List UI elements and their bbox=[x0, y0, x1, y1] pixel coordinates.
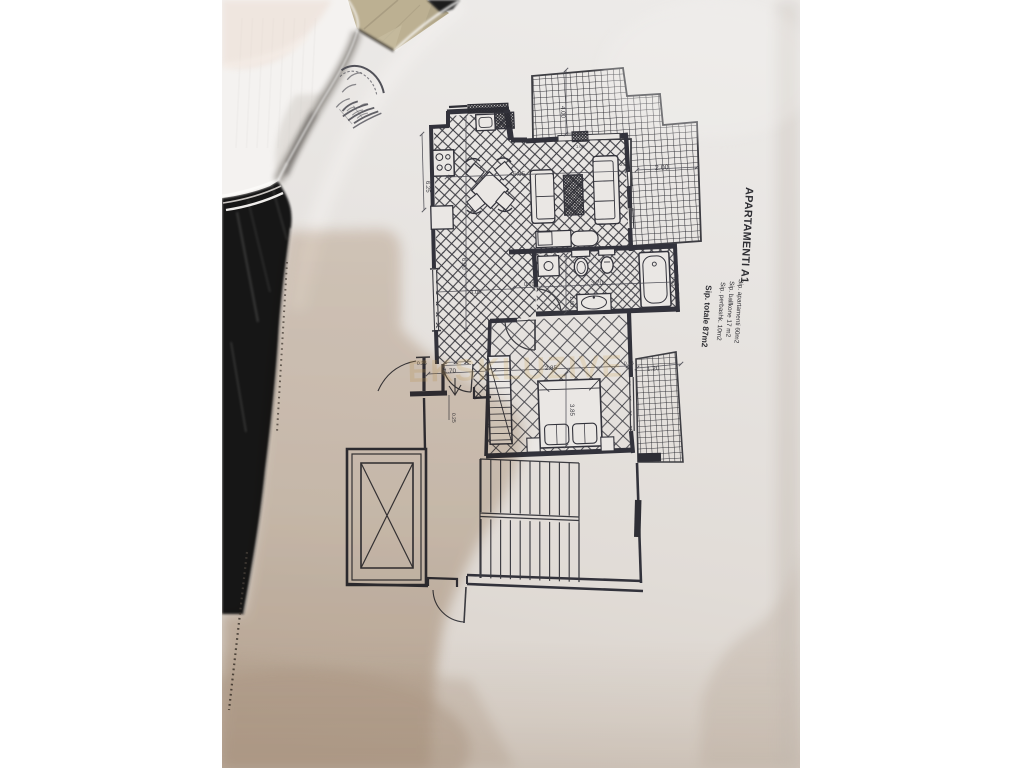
svg-text:4.00: 4.00 bbox=[559, 106, 566, 119]
svg-text:3.70: 3.70 bbox=[591, 280, 604, 287]
svg-text:6.30: 6.30 bbox=[460, 258, 466, 271]
svg-text:3.85: 3.85 bbox=[568, 404, 575, 417]
svg-text:0.70: 0.70 bbox=[524, 282, 535, 288]
svg-text:2.00: 2.00 bbox=[655, 164, 669, 172]
svg-text:0.25: 0.25 bbox=[670, 277, 676, 287]
svg-text:1.00: 1.00 bbox=[576, 144, 585, 149]
svg-text:6.25: 6.25 bbox=[424, 181, 430, 194]
svg-text:2.25: 2.25 bbox=[620, 161, 630, 167]
svg-text:0.25: 0.25 bbox=[624, 360, 634, 367]
svg-text:1.80: 1.80 bbox=[568, 296, 574, 307]
svg-text:3.05: 3.05 bbox=[470, 290, 481, 296]
svg-text:1.20: 1.20 bbox=[647, 365, 660, 373]
svg-text:5.65: 5.65 bbox=[513, 171, 526, 178]
